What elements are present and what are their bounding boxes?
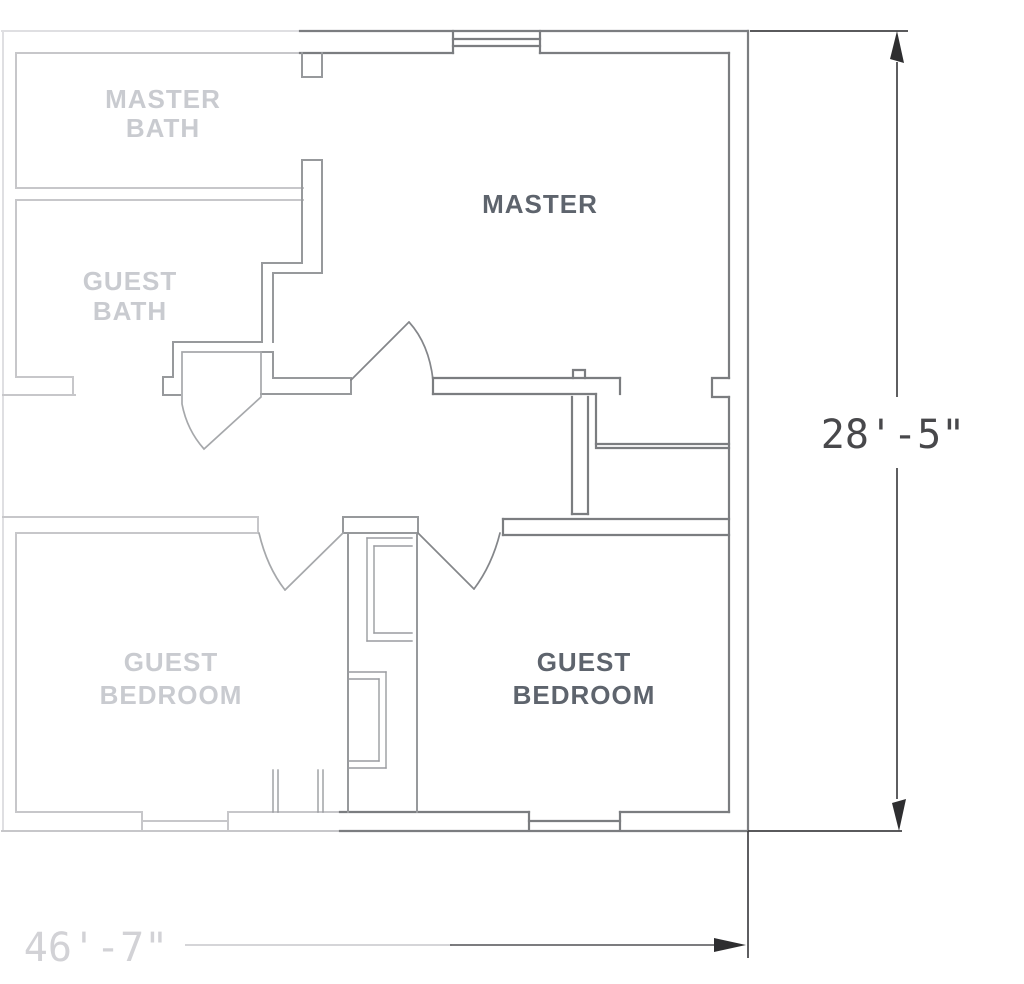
room-label-master-bath: MASTER BATH: [105, 84, 221, 143]
master-door-swing: [351, 322, 433, 380]
room-label-guest-bedroom-left: GUEST BEDROOM: [100, 647, 243, 710]
room-label-master: MASTER: [482, 189, 598, 219]
svg-text:BEDROOM: BEDROOM: [513, 680, 656, 710]
exterior-walls-faded: [2, 31, 340, 831]
svg-text:BATH: BATH: [126, 113, 200, 143]
dimension-text-height: 28'-5": [821, 412, 966, 458]
svg-text:GUEST: GUEST: [83, 266, 178, 296]
bedroom-north-wall-right: [503, 519, 729, 535]
exterior-walls-dark: [300, 31, 748, 831]
svg-text:GUEST: GUEST: [537, 647, 632, 677]
window-bottom-right: [529, 812, 620, 830]
room-label-guest-bath: GUEST BATH: [83, 266, 178, 326]
dimension-arrow-down: [892, 799, 906, 831]
dimension-arrow-up: [890, 31, 904, 63]
guest-bedroom-left-door-swing: [259, 533, 343, 590]
dimension-text-width: 46'-7": [24, 925, 169, 971]
svg-text:BATH: BATH: [93, 296, 167, 326]
dimension-right: 28'-5": [748, 31, 965, 831]
dimension-arrow-right: [714, 938, 746, 952]
window-bottom-left: [142, 812, 228, 830]
center-closet-shelving: [273, 538, 412, 812]
right-wall-recess: [712, 378, 729, 397]
guest-bath-door-swing: [182, 352, 261, 449]
floor-plan-drawing: 28'-5" 46'-7" MASTER BATH GUEST BATH MAS…: [0, 0, 1024, 984]
window-top: [453, 31, 540, 53]
svg-text:MASTER: MASTER: [482, 189, 598, 219]
dimension-bottom: 46'-7": [24, 831, 748, 971]
guest-bedroom-right-door-swing: [418, 533, 500, 589]
master-south-walls: [433, 370, 729, 514]
svg-text:BEDROOM: BEDROOM: [100, 680, 243, 710]
svg-text:GUEST: GUEST: [124, 647, 219, 677]
room-label-guest-bedroom-right: GUEST BEDROOM: [513, 647, 656, 710]
svg-text:MASTER: MASTER: [105, 84, 221, 114]
floor-plan-page: 28'-5" 46'-7" MASTER BATH GUEST BATH MAS…: [0, 0, 1024, 984]
